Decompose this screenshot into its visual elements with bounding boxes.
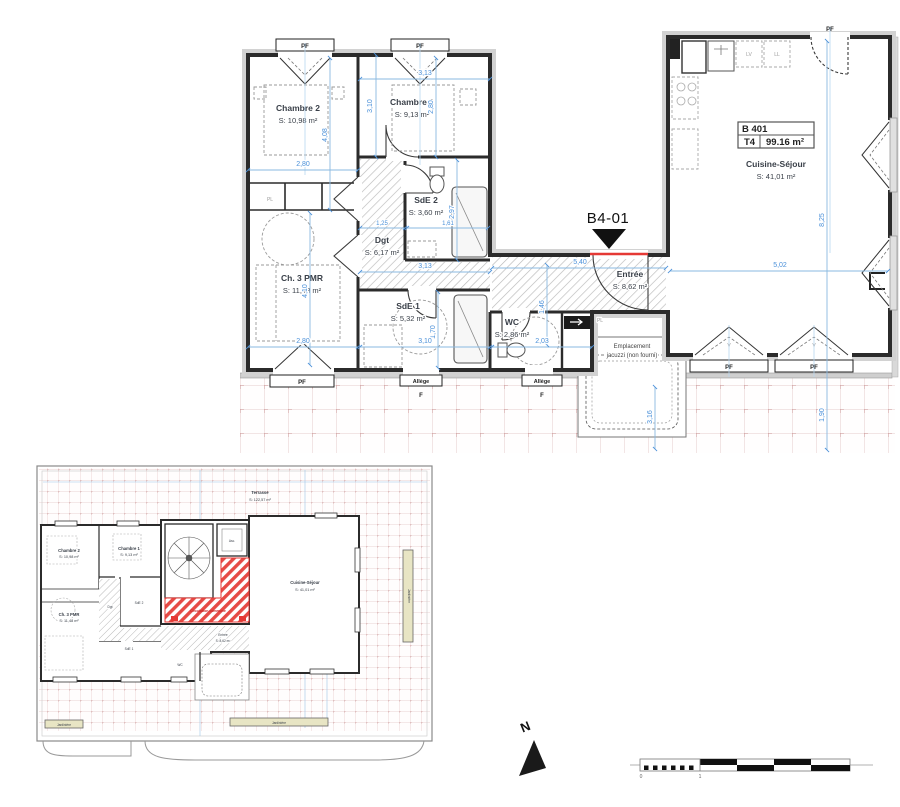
ov-wc: WC: [177, 663, 183, 667]
room-chambre1-area: S: 9,13 m²: [395, 110, 430, 119]
window-f-label: F: [540, 393, 544, 399]
entry-marker-triangle-icon: [592, 229, 626, 249]
ov-sde2: SdE 2: [135, 601, 144, 605]
room-ch3pmr-name: Ch. 3 PMR: [281, 273, 323, 283]
dim-label: 1,90: [819, 408, 826, 422]
ov-cuisine: Cuisine-Séjour: [290, 580, 320, 585]
ov-chambre1-area: S: 9,13 m²: [120, 553, 138, 557]
ov-cuisine-area: S: 41,01 m²: [295, 588, 315, 592]
room-sde1-name: SdE 1: [396, 301, 420, 311]
jacuzzi-label-line2: jacuzzi (non fourni): [606, 353, 658, 359]
unit-code: B 401: [742, 124, 768, 135]
room-wc-name: WC: [505, 317, 519, 327]
room-chambre2-area: S: 10,98 m²: [279, 116, 318, 125]
room-dgt-area: S: 6,17 m²: [365, 248, 400, 257]
ov-entree: Entrée: [218, 633, 228, 637]
unit-area: 99.16 m²: [766, 137, 804, 148]
dim-label: 2,97: [449, 205, 456, 219]
room-wc-area: S: 2,86 m²: [495, 330, 530, 339]
jardiniere-label: Jardinière: [57, 723, 71, 727]
dim-label: 5,02: [773, 262, 787, 269]
elevator-label: Asc.: [229, 539, 235, 543]
dim-label: 2,80: [296, 338, 310, 345]
circulation-label: Circulation commune: [190, 609, 226, 613]
ov-ch3pmr-area: S: 11,48 m²: [59, 619, 79, 623]
dim-label: 3,10: [418, 338, 432, 345]
dim-label: 1,25: [376, 221, 388, 227]
dim-label: 2,03: [535, 338, 549, 345]
dim-label: 3,13: [418, 70, 432, 77]
north-arrow-icon: [519, 740, 546, 776]
closet-label: PL: [267, 197, 273, 203]
north-label: N: [518, 718, 532, 735]
terrasse-name: Terrasse: [251, 490, 269, 495]
room-sde2-name: SdE 2: [414, 195, 438, 205]
room-sde2-area: S: 3,60 m²: [409, 208, 444, 217]
apartment-plan-b401: Emplacement jacuzzi (non fourni): [240, 25, 900, 455]
unit-type: T4: [744, 137, 756, 148]
floor-plan-sheet: Emplacement jacuzzi (non fourni): [0, 0, 900, 807]
dim-label: 1,70: [430, 325, 437, 339]
room-chambre2-name: Chambre 2: [276, 103, 320, 113]
terrasse-area: S: 122,57 m²: [249, 498, 271, 502]
room-cuisine-area: S: 41,01 m²: [757, 172, 796, 181]
jardiniere-label: Jardinière: [407, 589, 411, 603]
spiral-stair-icon: [168, 537, 210, 579]
jacuzzi-label-line1: Emplacement: [614, 344, 651, 350]
jardiniere-label: Jardinière: [272, 721, 286, 725]
scale-zero-label: 0: [640, 774, 643, 780]
overview-entree-hatch: [161, 626, 249, 650]
window-allege-label: Allège: [534, 379, 551, 385]
dim-label: 1,46: [539, 300, 546, 314]
balcony-outline: [43, 741, 424, 760]
north-arrow: N: [500, 715, 570, 790]
unit-entry-marker: B4-01: [587, 210, 630, 249]
dim-label: 4,08: [322, 128, 329, 142]
dim-label: 2,80: [296, 161, 310, 168]
dim-label: 8,25: [819, 213, 826, 227]
dim-label: 4,10: [302, 284, 309, 298]
dishwasher-label: LV: [746, 52, 752, 58]
unit-entry-marker-label: B4-01: [587, 210, 630, 227]
ov-entree-area: S: 8,62 m²: [216, 639, 231, 643]
room-sde1-area: S: 5,32 m²: [391, 314, 426, 323]
washer-label: LL: [774, 52, 780, 58]
window-f-label: F: [419, 393, 423, 399]
unit-info-box: B 401 T4 99.16 m²: [738, 122, 814, 148]
scale-bar: 0 1: [628, 745, 883, 785]
window-allege-label: Allège: [413, 379, 430, 385]
scale-one-label: 1: [699, 774, 702, 780]
floor-overview-plan: Terrasse S: 122,57 m²: [25, 458, 435, 768]
overview-jacuzzi: [195, 654, 249, 700]
room-entree-name: Entrée: [617, 269, 644, 279]
window-pf-label: PF: [298, 380, 306, 386]
dim-label: 2,80: [428, 100, 435, 114]
room-cuisine-name: Cuisine-Séjour: [746, 159, 807, 169]
ov-sde1: SdE 1: [125, 647, 134, 651]
dim-label: 3,13: [418, 263, 432, 270]
ov-chambre2-area: S: 10,98 m²: [59, 555, 79, 559]
dim-label: 3,16: [647, 410, 654, 424]
dim-label: 3,10: [367, 99, 374, 113]
meter-closet-label: PL: [597, 318, 603, 324]
ov-dgt: Dgt: [108, 605, 113, 609]
room-entree-area: S: 8,62 m²: [613, 282, 648, 291]
dim-label: 5,40: [573, 259, 587, 266]
ov-chambre1: Chambre 1: [118, 546, 140, 551]
dim-label: 1,61: [442, 221, 454, 227]
room-dgt-name: Dgt: [375, 235, 389, 245]
ov-ch3pmr: Ch. 3 PMR: [59, 612, 80, 617]
ov-chambre2: Chambre 2: [58, 548, 80, 553]
